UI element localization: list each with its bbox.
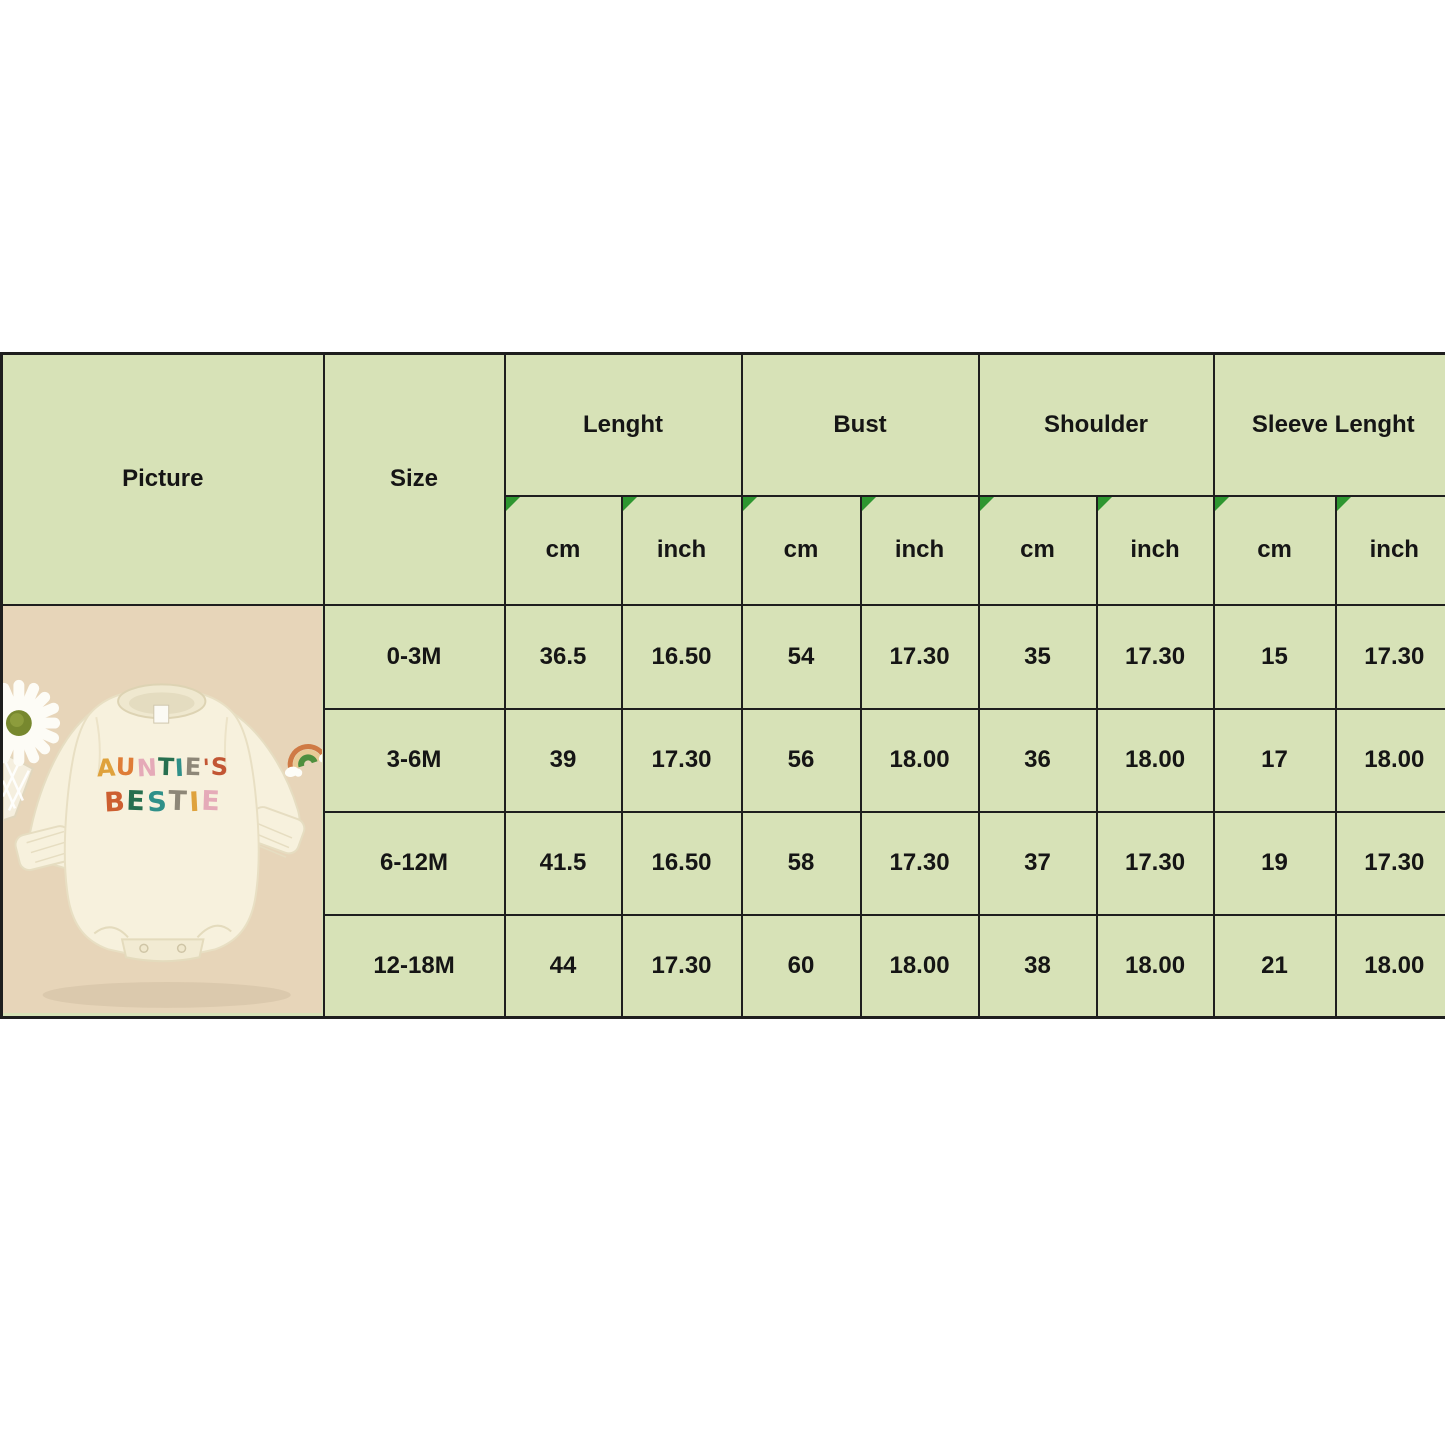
measurement-cell: 17.30 (1097, 812, 1214, 915)
unit-header-bust-cm: cm (742, 496, 861, 605)
green-corner-marker-icon (1098, 497, 1112, 511)
product-photo: AUNTIE'S BESTIE (3, 606, 323, 1017)
column-header-size: Size (324, 354, 505, 605)
product-photo-cell: AUNTIE'S BESTIE (2, 605, 324, 1018)
measurement-cell: 21 (1214, 915, 1336, 1018)
measurement-cell: 18.00 (1336, 709, 1445, 812)
measurement-cell: 18.00 (861, 709, 979, 812)
daisy-flower-icon (3, 685, 55, 760)
size-chart-page: { "colors": { "table_border": "#1e1e1e",… (0, 0, 1445, 1445)
measurement-cell: 18.00 (861, 915, 979, 1018)
size-row-label: 3-6M (324, 709, 505, 812)
measurement-cell: 16.50 (622, 605, 742, 709)
measurement-cell: 17.30 (1336, 812, 1445, 915)
unit-header-length-inch: inch (622, 496, 742, 605)
size-row-label: 0-3M (324, 605, 505, 709)
size-chart-table: Picture Size Lenght Bust Shoulder Sleeve… (0, 352, 1445, 1019)
measurement-cell: 41.5 (505, 812, 622, 915)
unit-label: inch (895, 536, 944, 563)
group-header-sleeve-length: Sleeve Lenght (1214, 354, 1445, 496)
measurement-cell: 17.30 (861, 812, 979, 915)
measurement-cell: 36.5 (505, 605, 622, 709)
measurement-cell: 36 (979, 709, 1097, 812)
measurement-cell: 18.00 (1097, 709, 1214, 812)
measurement-cell: 17.30 (1336, 605, 1445, 709)
measurement-cell: 35 (979, 605, 1097, 709)
green-corner-marker-icon (743, 497, 757, 511)
shirt-text-line1: AUNTIE'S (96, 755, 229, 779)
unit-header-length-cm: cm (505, 496, 622, 605)
measurement-cell: 58 (742, 812, 861, 915)
green-corner-marker-icon (862, 497, 876, 511)
measurement-cell: 39 (505, 709, 622, 812)
unit-header-shoulder-inch: inch (1097, 496, 1214, 605)
unit-label: inch (1370, 536, 1419, 563)
measurement-cell: 54 (742, 605, 861, 709)
measurement-cell: 37 (979, 812, 1097, 915)
unit-label: cm (1020, 536, 1055, 563)
unit-header-shoulder-cm: cm (979, 496, 1097, 605)
measurement-cell: 38 (979, 915, 1097, 1018)
shirt-text-line2: BESTIE (104, 788, 221, 815)
unit-label: cm (1257, 536, 1292, 563)
unit-header-sleeve-cm: cm (1214, 496, 1336, 605)
unit-header-bust-inch: inch (861, 496, 979, 605)
measurement-cell: 60 (742, 915, 861, 1018)
group-header-shoulder: Shoulder (979, 354, 1214, 496)
measurement-cell: 15 (1214, 605, 1336, 709)
unit-label: cm (784, 536, 819, 563)
column-header-picture: Picture (2, 354, 324, 605)
measurement-cell: 19 (1214, 812, 1336, 915)
green-corner-marker-icon (506, 497, 520, 511)
green-corner-marker-icon (1215, 497, 1229, 511)
measurement-cell: 18.00 (1336, 915, 1445, 1018)
measurement-cell: 17.30 (622, 915, 742, 1018)
measurement-cell: 16.50 (622, 812, 742, 915)
green-corner-marker-icon (1337, 497, 1351, 511)
group-header-length: Lenght (505, 354, 742, 496)
measurement-cell: 17.30 (861, 605, 979, 709)
measurement-cell: 17.30 (622, 709, 742, 812)
measurement-cell: 17.30 (1097, 605, 1214, 709)
size-row-label: 6-12M (324, 812, 505, 915)
group-header-bust: Bust (742, 354, 979, 496)
green-corner-marker-icon (980, 497, 994, 511)
unit-label: cm (546, 536, 581, 563)
unit-label: inch (657, 536, 706, 563)
size-row-label: 12-18M (324, 915, 505, 1018)
measurement-cell: 18.00 (1097, 915, 1214, 1018)
green-corner-marker-icon (623, 497, 637, 511)
measurement-cell: 17 (1214, 709, 1336, 812)
unit-header-sleeve-inch: inch (1336, 496, 1445, 605)
measurement-cell: 44 (505, 915, 622, 1018)
unit-label: inch (1130, 536, 1179, 563)
measurement-cell: 56 (742, 709, 861, 812)
